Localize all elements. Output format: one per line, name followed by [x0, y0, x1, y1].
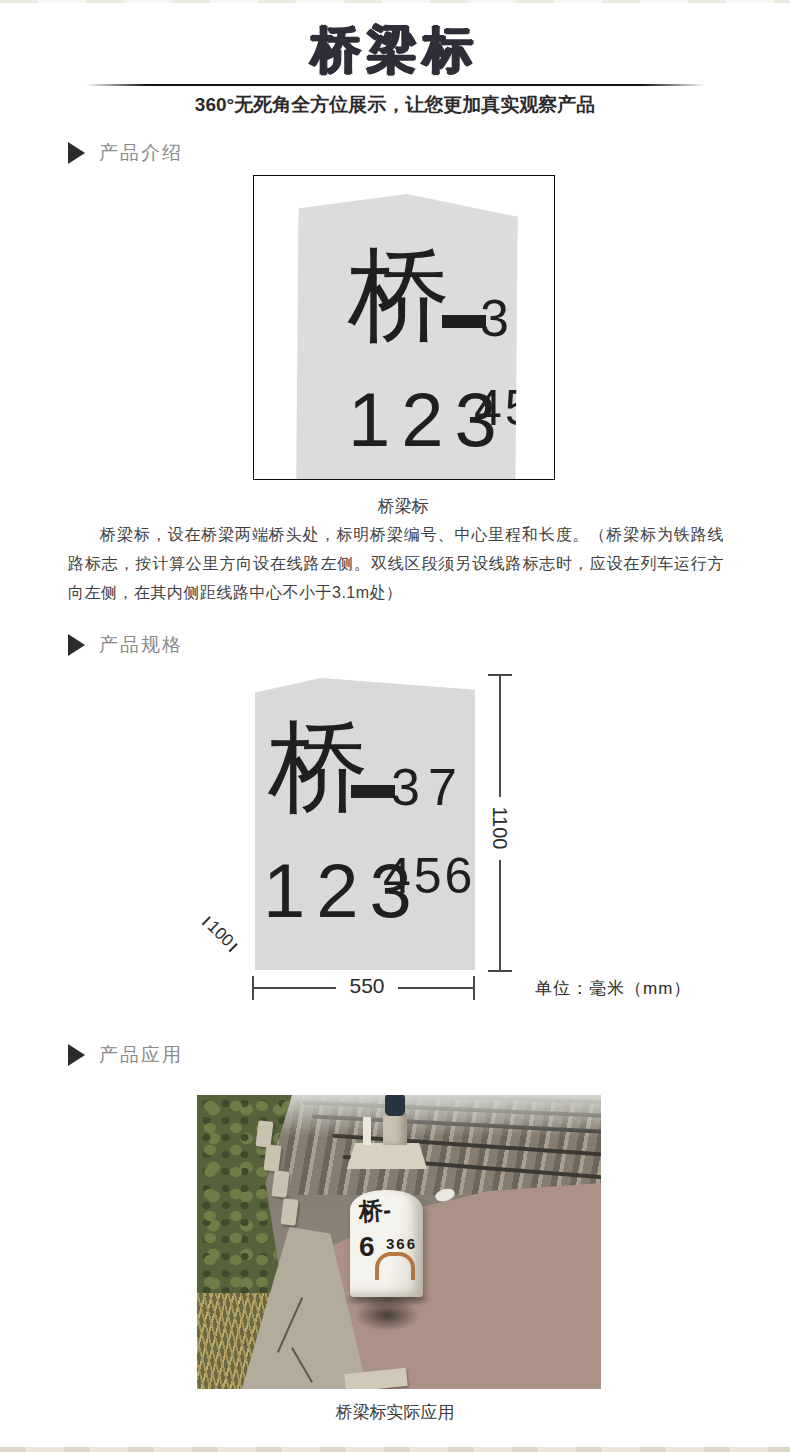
- marker-serial-number: 37: [480, 292, 554, 344]
- signal-concrete-pad: [347, 1143, 427, 1169]
- parapet-post: [263, 1144, 281, 1172]
- application-photo: 桥- 6 366: [197, 1095, 601, 1389]
- top-edge-texture: [0, 0, 790, 3]
- triangle-arrow-icon: [68, 142, 85, 164]
- height-dimension-line: [499, 675, 501, 797]
- title-divider: [85, 84, 705, 86]
- width-dimension-line: [252, 987, 336, 989]
- real-bridge-marker-stone: 桥- 6 366: [350, 1190, 423, 1297]
- section-label: 产品规格: [99, 632, 183, 658]
- application-caption: 桥梁标实际应用: [0, 1401, 790, 1424]
- section-label: 产品介绍: [99, 140, 183, 166]
- marker-dash: —: [351, 751, 395, 821]
- parapet-post: [255, 1120, 273, 1148]
- signal-pillar: [383, 1113, 407, 1145]
- parapet-post: [280, 1198, 298, 1226]
- height-dimension-line: [499, 860, 501, 972]
- dimension-tick: [229, 943, 238, 952]
- width-dimension-line: [398, 987, 474, 989]
- intro-image-caption: 桥梁标: [253, 495, 553, 518]
- product-image-frame: 桥 — 37 123 456: [253, 175, 555, 480]
- bridge-marker-illustration: 桥 — 37 123 456: [294, 194, 520, 479]
- marker-mileage-small: 456: [474, 383, 566, 433]
- unit-label: 单位：毫米（mm）: [535, 977, 691, 1000]
- height-dimension-label: 1100: [490, 806, 510, 850]
- signal-head: [385, 1095, 405, 1116]
- dark-soil-patch: [355, 1299, 419, 1331]
- page-subtitle: 360°无死角全方位展示，让您更加真实观察产品: [0, 92, 790, 118]
- marker-prefix-char: 桥: [348, 244, 450, 346]
- depth-dimension-label: 100: [199, 913, 242, 956]
- triangle-arrow-icon: [68, 1044, 85, 1066]
- stone-marker-number-big: 6: [359, 1233, 375, 1261]
- section-header-intro: 产品介绍: [68, 140, 183, 166]
- section-label: 产品应用: [99, 1042, 183, 1068]
- section-header-spec: 产品规格: [68, 632, 183, 658]
- page-title: 桥梁标: [0, 22, 790, 78]
- width-dimension-label: 550: [336, 975, 398, 996]
- marker-mileage-small: 456: [383, 851, 475, 901]
- stone-marker-number-small: 366: [386, 1236, 417, 1251]
- stone-marker-prefix: 桥-: [358, 1198, 392, 1224]
- product-description: 桥梁标，设在桥梁两端桥头处，标明桥梁编号、中心里程和长度。（桥梁标为铁路线路标志…: [68, 520, 724, 607]
- dimension-cap: [252, 976, 254, 1000]
- dimension-cap: [488, 970, 512, 972]
- section-header-application: 产品应用: [68, 1042, 183, 1068]
- dimension-cap: [473, 976, 475, 1000]
- triangle-arrow-icon: [68, 634, 85, 656]
- spec-marker-illustration: 桥 — 37 123 456: [255, 678, 475, 970]
- marker-serial-number: 37: [391, 761, 465, 813]
- bottom-edge-texture: [0, 1447, 790, 1452]
- product-detail-page: 桥梁标 360°无死角全方位展示，让您更加真实观察产品 产品介绍 桥 — 37 …: [0, 0, 790, 1452]
- parapet-post: [271, 1170, 289, 1198]
- dimension-cap: [488, 674, 512, 676]
- rust-stain: [375, 1252, 415, 1280]
- white-post: [363, 1117, 371, 1145]
